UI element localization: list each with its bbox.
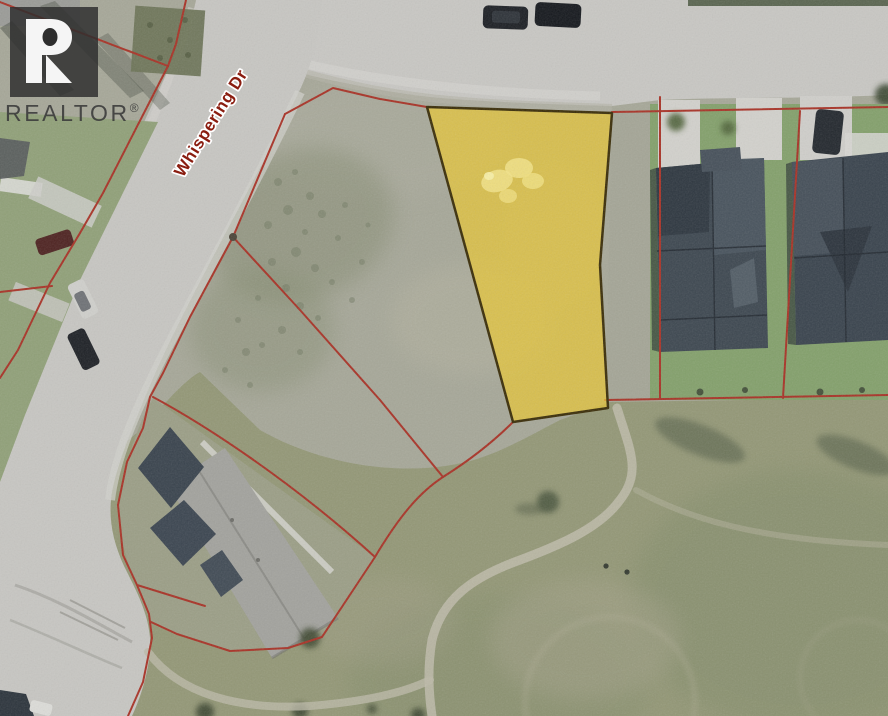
aerial-parcel-photo: Whispering Dr REALTOR® [0, 0, 888, 716]
realtor-brand-text: REALTOR® [5, 100, 141, 126]
aerial-map-canvas: Whispering Dr REALTOR® [0, 0, 888, 716]
